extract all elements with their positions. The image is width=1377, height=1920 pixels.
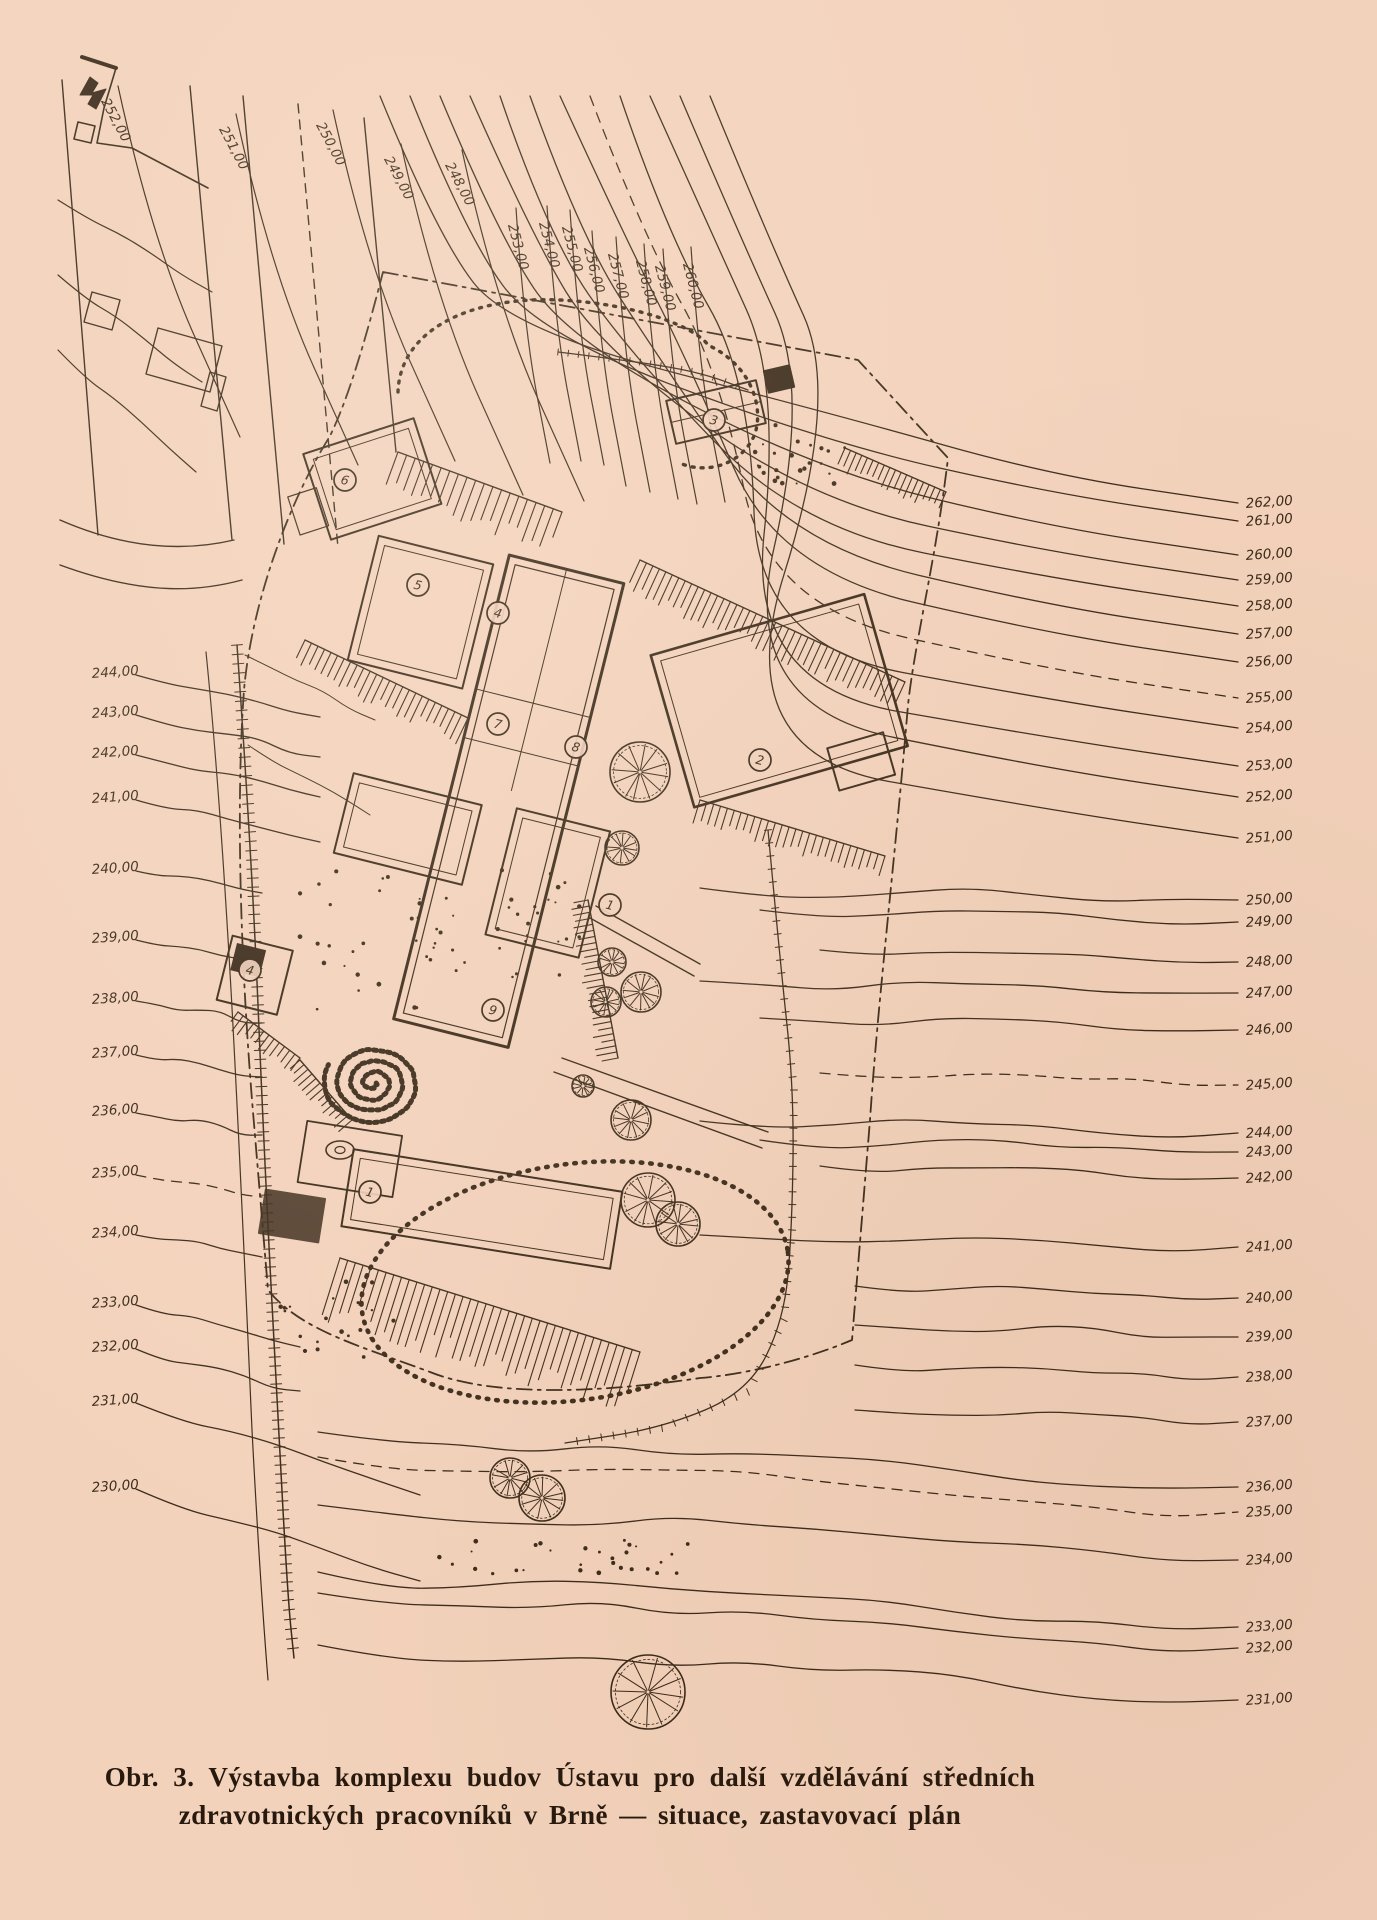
dot: [419, 898, 421, 900]
tick-mark: [274, 1447, 285, 1448]
hatch-line: [879, 856, 885, 876]
tick-mark: [260, 1177, 271, 1178]
tick-mark: [277, 1492, 288, 1493]
plan-graphic: [760, 1018, 1238, 1031]
hatch-line: [515, 1318, 532, 1373]
streets: [60, 80, 396, 1680]
tick-mark: [785, 1038, 792, 1039]
contour-label: 252,00: [1245, 787, 1293, 806]
dot: [843, 446, 846, 449]
building-marker: 6: [334, 469, 356, 491]
manhole-symbol: [326, 1141, 354, 1159]
dot: [798, 468, 803, 473]
hatch-line: [798, 831, 803, 846]
hatch-line: [755, 819, 762, 842]
dot: [371, 1309, 373, 1311]
tree-branch: [612, 770, 638, 772]
hatch-line: [658, 575, 672, 605]
dot: [509, 897, 513, 901]
dot: [316, 1347, 320, 1351]
contour-label: 243,00: [91, 703, 139, 722]
tree-branch: [630, 1694, 647, 1722]
tree-icon: [610, 742, 670, 802]
tick-mark: [238, 738, 249, 739]
dot: [451, 1563, 454, 1566]
plan-graphic: [340, 1258, 640, 1352]
contour-label: 236,00: [91, 1101, 139, 1120]
tick-mark: [244, 822, 255, 823]
dot: [500, 868, 504, 872]
contour-label: 239,00: [1245, 1327, 1293, 1346]
dot: [660, 1561, 663, 1564]
hatch-line: [532, 506, 545, 541]
tree-texture: [600, 950, 625, 975]
dot: [575, 934, 577, 936]
tick-mark: [266, 1285, 277, 1286]
tree-crown: [605, 831, 639, 865]
dot: [347, 1334, 350, 1337]
tick-mark: [245, 832, 256, 833]
dot: [435, 928, 438, 931]
hatch-line: [590, 991, 606, 994]
dot: [352, 950, 355, 953]
dot: [819, 446, 823, 450]
hatch-line: [484, 1309, 502, 1366]
tree-branch: [649, 1668, 673, 1690]
tick-mark: [784, 1025, 791, 1026]
dot: [583, 1546, 587, 1550]
contour-label: 237,00: [91, 1043, 139, 1062]
tick-mark: [286, 1628, 297, 1629]
hatch-line: [596, 1046, 616, 1050]
hatch-line: [935, 490, 941, 503]
hatch-line: [597, 1052, 617, 1056]
hatch-line: [894, 472, 901, 488]
contour-label: 252,00: [97, 96, 133, 145]
tick-mark: [259, 1168, 270, 1169]
tick-mark: [268, 1339, 279, 1340]
dot: [655, 1571, 659, 1575]
plan-graphic: [650, 96, 1238, 766]
hatch-line: [410, 696, 422, 722]
hatch-line: [825, 649, 834, 668]
contour-label: 255,00: [1245, 688, 1293, 707]
tick-mark: [772, 908, 779, 909]
plan-graphic: [820, 1166, 1238, 1179]
plan-graphic: [820, 950, 1238, 962]
plan-graphic: [136, 675, 320, 717]
hatch-line: [517, 499, 527, 527]
hatch-line: [397, 690, 410, 716]
hatch-line: [855, 455, 862, 470]
dot: [828, 472, 830, 474]
dot: [451, 948, 454, 951]
plan-graphic: [136, 1175, 262, 1197]
tick-mark: [789, 1230, 796, 1231]
hatch-line: [867, 852, 872, 867]
dot: [283, 1310, 286, 1313]
tick-mark: [786, 1255, 793, 1256]
dot: [773, 478, 778, 483]
tick-mark: [783, 1294, 790, 1295]
dot: [417, 901, 421, 905]
dot: [361, 941, 365, 945]
hatch-line: [838, 844, 844, 863]
tick-mark: [589, 1436, 590, 1443]
tree-icon: [621, 972, 661, 1012]
tick-mark: [269, 1348, 280, 1349]
tick-mark: [276, 1474, 287, 1475]
hatch-line: [838, 448, 845, 464]
tick-mark: [777, 960, 784, 961]
tree-branch: [680, 1224, 698, 1226]
tree-branch: [650, 1200, 673, 1202]
tick-mark: [599, 354, 600, 360]
dot: [796, 482, 798, 484]
tick-mark: [278, 1519, 289, 1520]
dot: [463, 961, 466, 964]
tree-branch: [679, 1225, 692, 1238]
spiral-path: [324, 1050, 415, 1123]
contour-label: 259,00: [1245, 570, 1293, 589]
hatch-line: [390, 1280, 409, 1342]
hatch-line: [574, 924, 593, 928]
tick-mark: [601, 1434, 602, 1441]
hatch-line: [630, 560, 640, 582]
dot: [376, 982, 381, 987]
hatch-line: [593, 1022, 611, 1025]
plan-graphic: [136, 1055, 262, 1077]
dot: [356, 972, 360, 976]
dot: [491, 1572, 494, 1575]
hatch-line: [844, 846, 851, 868]
tick-mark: [782, 1012, 789, 1013]
tick-mark: [232, 654, 243, 655]
tick-mark: [577, 1438, 578, 1445]
tick-mark: [243, 813, 254, 814]
dot: [557, 940, 559, 942]
tree-branch: [614, 1121, 629, 1127]
plan-graphic: [855, 1286, 1238, 1299]
dot: [554, 901, 556, 903]
hatch-line: [576, 943, 596, 947]
contour-label: 234,00: [91, 1223, 139, 1242]
dot: [820, 462, 823, 465]
tick-mark: [568, 350, 569, 356]
hatch-line: [580, 949, 597, 952]
dot: [630, 1567, 634, 1571]
contour-lines: [58, 86, 1238, 1702]
tick-mark: [786, 1051, 793, 1052]
hatch-line: [558, 1330, 571, 1372]
hatch-line: [506, 1316, 525, 1375]
tree-branch: [574, 1086, 581, 1088]
tick-mark: [275, 1465, 286, 1466]
plan-graphic: [760, 1140, 1238, 1153]
dot: [432, 947, 434, 949]
dot: [511, 976, 513, 978]
tick-mark: [272, 1402, 283, 1403]
tree-icon: [605, 831, 639, 865]
tick-mark: [771, 895, 778, 896]
hatch-line: [684, 587, 699, 619]
tree-branch: [510, 1460, 512, 1476]
tick-mark: [781, 1318, 787, 1321]
building-marker: 8: [565, 736, 587, 758]
hatch-line: [421, 699, 429, 716]
plan-graphic: [136, 755, 320, 797]
hatch-line: [882, 468, 890, 487]
tick-mark: [282, 1591, 293, 1592]
building-marker: 2: [749, 749, 771, 771]
hatch-line: [509, 496, 519, 523]
plan-graphic: [700, 981, 1238, 993]
tick-mark: [246, 850, 257, 851]
building-marker: 4: [239, 959, 261, 981]
dot: [809, 444, 812, 447]
hatch-line: [460, 1301, 479, 1360]
dot: [780, 481, 785, 486]
tick-mark: [282, 1582, 293, 1583]
contour-label: 238,00: [91, 989, 139, 1008]
dot: [619, 1566, 623, 1570]
tree-branch: [623, 990, 639, 991]
hatch-line: [859, 850, 865, 869]
tick-mark: [661, 1425, 662, 1432]
tree-branch: [613, 850, 621, 860]
tree-branch: [618, 1673, 646, 1691]
tick-mark: [278, 1510, 289, 1511]
plan-graphic: [700, 888, 1238, 901]
hatch-line: [290, 1060, 300, 1068]
tree-branch: [619, 1122, 629, 1134]
plan-graphic: [530, 96, 1238, 634]
dot: [762, 443, 764, 445]
hatch-line: [584, 973, 601, 976]
plan-graphic: [760, 910, 1238, 924]
plan-graphic: [565, 830, 793, 1443]
contour-label: 241,00: [91, 788, 139, 807]
building-marker: 5: [407, 574, 429, 596]
contour-label: 242,00: [1245, 1168, 1293, 1187]
tick-mark: [775, 947, 782, 948]
tree-branch: [607, 848, 620, 851]
tick-mark: [681, 366, 682, 372]
dot: [357, 989, 360, 992]
contour-label: 233,00: [91, 1293, 139, 1312]
tree-branch: [633, 1661, 647, 1691]
plan-graphic: [380, 96, 1238, 503]
hatch-line: [595, 1342, 609, 1387]
dot: [298, 891, 302, 895]
hatch-line: [525, 1321, 540, 1369]
tick-mark: [284, 1609, 295, 1610]
hatch-line: [827, 652, 841, 681]
tick-mark: [241, 785, 252, 786]
tick-paths: [232, 349, 798, 1658]
hatch-line: [615, 1350, 633, 1406]
tick-mark: [268, 1330, 279, 1331]
hatch-line: [703, 596, 718, 628]
tree-branch: [607, 847, 620, 848]
tree-icon: [656, 1202, 700, 1246]
dot: [526, 922, 530, 926]
dot: [577, 935, 581, 939]
dot: [498, 947, 501, 950]
hatch-line: [404, 458, 416, 490]
hatch-line: [461, 480, 476, 521]
tick-mark: [260, 1186, 271, 1187]
tree-branch: [613, 1691, 646, 1692]
dot: [439, 931, 443, 935]
dot: [670, 1553, 673, 1556]
building-1-main: [394, 555, 624, 1047]
tick-mark: [235, 691, 246, 692]
tree-crown: [490, 1458, 530, 1498]
building-marker: 1: [599, 894, 621, 916]
hatch-line: [334, 659, 344, 680]
building-6: [277, 418, 442, 548]
hatch-line: [431, 468, 441, 496]
contour-label: 234,00: [1245, 1550, 1293, 1569]
hatch-line: [386, 452, 398, 484]
hatch-line: [363, 674, 376, 702]
tree-branch: [641, 773, 660, 791]
dot: [278, 1305, 282, 1309]
tick-mark: [262, 1222, 273, 1223]
tree-branch: [582, 1088, 583, 1095]
dot: [802, 466, 806, 470]
dot: [556, 885, 561, 890]
tick-mark: [270, 1375, 281, 1376]
tree-branch: [648, 1175, 652, 1198]
tick-mark: [769, 882, 776, 883]
plan-graphic: [318, 1505, 1238, 1561]
dot: [558, 973, 561, 976]
tick-mark: [670, 365, 671, 371]
dot: [378, 889, 381, 892]
hatch-line: [583, 1340, 601, 1399]
hatch-line: [803, 833, 810, 856]
building-marker: 7: [487, 713, 509, 735]
tick-mark: [269, 1357, 280, 1358]
tick-mark: [259, 1159, 270, 1160]
tree-branch: [542, 1477, 543, 1496]
plan-graphic: [58, 275, 202, 382]
dot: [316, 1340, 319, 1343]
contour-label: 260,00: [679, 261, 707, 311]
hatch-line: [870, 670, 879, 690]
dot: [334, 869, 338, 873]
dot: [646, 1567, 650, 1571]
plan-graphic: [700, 1120, 1238, 1137]
building-5: [348, 536, 493, 689]
hatch-line: [571, 1335, 587, 1385]
dot: [471, 1550, 473, 1552]
north-arrow: [74, 57, 208, 188]
contour-label: 250,00: [1245, 890, 1293, 909]
dot: [328, 944, 331, 947]
tick-mark: [280, 1555, 291, 1556]
plan-graphic: [305, 640, 468, 718]
contour-label: 247,00: [1245, 983, 1293, 1002]
dot: [381, 877, 384, 880]
spiral-garden: [324, 1050, 415, 1123]
tick-mark: [233, 663, 244, 664]
hatch-line: [736, 812, 741, 829]
tree-branch: [635, 1202, 647, 1221]
tree-texture: [614, 746, 667, 799]
hatch-line: [426, 702, 435, 721]
dot: [808, 461, 812, 465]
contour-label: 260,00: [1245, 545, 1293, 564]
tick-mark: [734, 1394, 737, 1400]
plan-graphic: [318, 1432, 1238, 1488]
dot: [549, 872, 553, 876]
hatch-line: [561, 1333, 578, 1388]
tick-mark: [267, 1321, 278, 1322]
hatch-line: [848, 661, 860, 688]
contour-label: 236,00: [1245, 1477, 1293, 1496]
hatch-line: [750, 817, 755, 833]
plan-graphic: [820, 1073, 1238, 1085]
hatch-line: [438, 471, 449, 502]
dot: [579, 1563, 582, 1566]
tick-mark: [281, 1564, 292, 1565]
hatch-line: [375, 1275, 394, 1335]
tick-mark: [271, 1393, 282, 1394]
plan-graphic: [398, 452, 562, 512]
tick-mark: [263, 1231, 274, 1232]
dot: [369, 1337, 371, 1339]
hatch-line: [874, 854, 878, 869]
dot: [577, 904, 581, 908]
contour-label: 249,00: [380, 154, 416, 203]
tick-mark: [261, 1204, 272, 1205]
dot: [358, 1328, 362, 1332]
plan-graphic: [58, 350, 196, 472]
dot: [623, 1539, 626, 1542]
dot: [412, 1005, 417, 1010]
dot: [533, 905, 536, 908]
tree-branch: [604, 1004, 606, 1015]
tick-mark: [768, 869, 775, 870]
hatch-line: [582, 961, 600, 964]
tree-branch: [632, 1121, 643, 1132]
contour-label: 241,00: [1245, 1237, 1293, 1256]
tick-mark: [788, 1064, 795, 1065]
tick-mark: [782, 1307, 789, 1308]
plan-graphic: [440, 96, 1238, 555]
dot: [299, 1335, 302, 1338]
tick-mark: [272, 1411, 283, 1412]
hatch-line: [502, 1313, 517, 1361]
tree-branch: [626, 1201, 646, 1212]
hatch-line: [708, 804, 714, 824]
hatch-line: [715, 806, 721, 826]
building-2: [651, 594, 915, 830]
hatch-line: [495, 493, 510, 535]
hatch-line: [811, 835, 816, 853]
tree-branch: [643, 1202, 648, 1225]
tick-mark: [613, 1432, 614, 1439]
building-annex: [298, 1121, 403, 1197]
hatch-line: [844, 450, 851, 466]
hatch-line: [734, 608, 743, 628]
dot: [635, 1545, 637, 1547]
plan-graphic: [500, 96, 1238, 606]
dot: [425, 955, 428, 958]
